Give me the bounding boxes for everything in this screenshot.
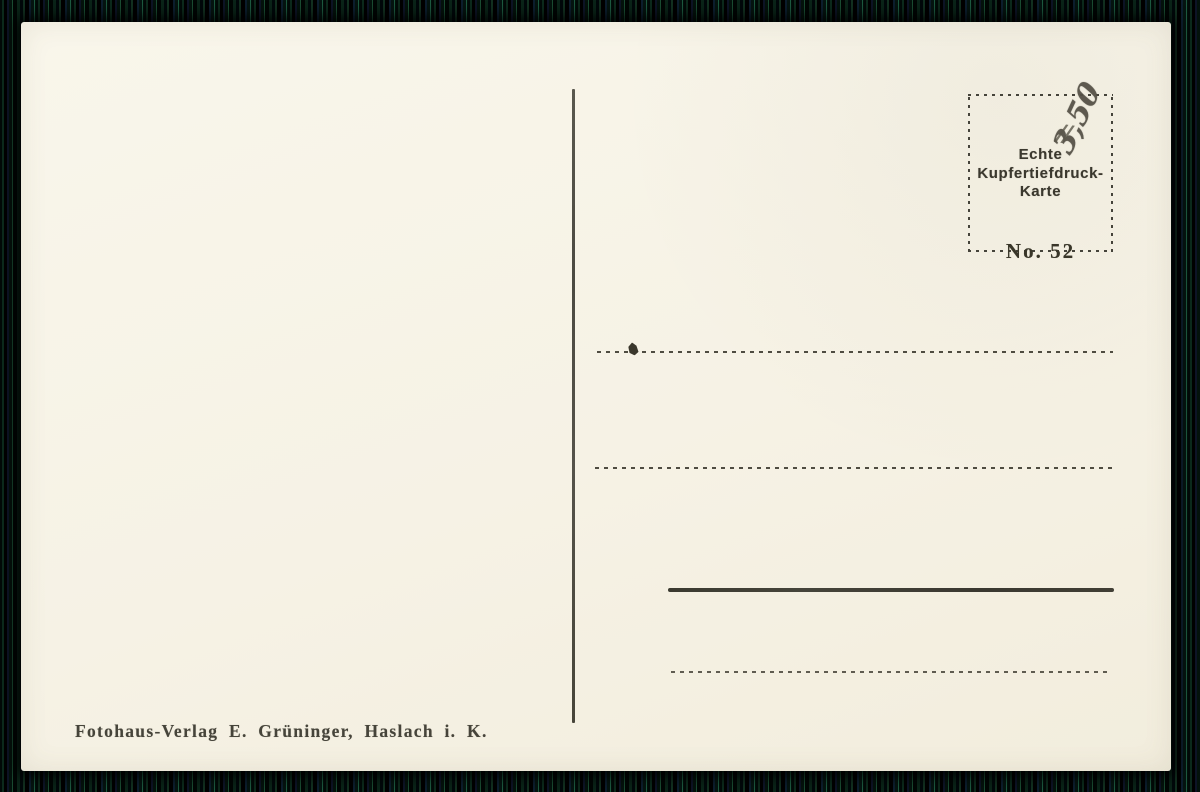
stamp-box-line2: Kupfertiefdruck-	[968, 165, 1113, 184]
stamp-box-number: No. 52	[968, 239, 1113, 264]
publisher-imprint: Fotohaus-Verlag E. Grüninger, Haslach i.…	[75, 721, 488, 742]
postcard-scan: Echte Kupfertiefdruck- Karte No. 52 3,50…	[0, 0, 1200, 792]
address-line-1	[597, 351, 1113, 353]
address-line-3-solid	[668, 588, 1114, 592]
message-address-divider	[572, 89, 575, 723]
postcard-back: Echte Kupfertiefdruck- Karte No. 52 3,50…	[21, 22, 1171, 771]
ink-blot	[627, 342, 640, 356]
address-line-2	[595, 467, 1112, 469]
stamp-box-line3: Karte	[968, 183, 1113, 202]
address-line-4	[671, 671, 1109, 673]
